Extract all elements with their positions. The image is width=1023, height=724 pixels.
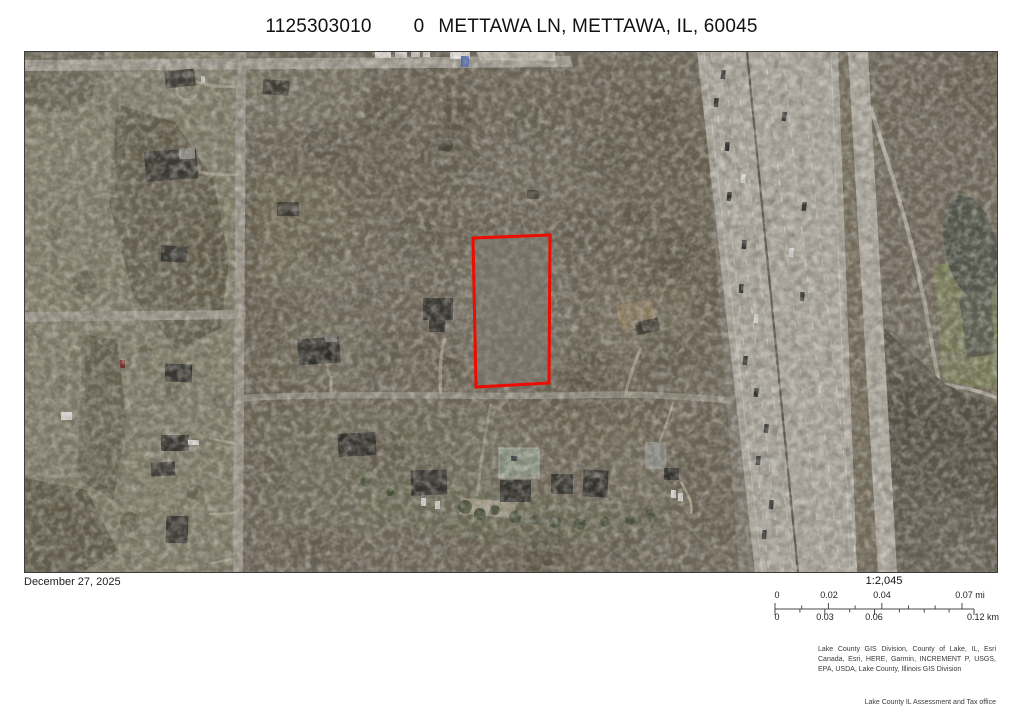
page-title: 11253030100METTAWA LN, METTAWA, IL, 6004… — [0, 16, 1023, 38]
mi-tick-3: 0.07 mi — [955, 590, 985, 600]
scale-km-labels: 0 0.03 0.06 0.12 km — [774, 612, 1004, 622]
mi-tick-0: 0 — [774, 590, 779, 600]
parcel-id: 1125303010 — [265, 16, 371, 37]
attribution-line-2: Canada, Esri, HERE, Garmin, INCREMENT P,… — [818, 655, 996, 665]
map-date: December 27, 2025 — [24, 576, 121, 588]
km-tick-1: 0.03 — [816, 612, 834, 622]
scale-bar: 1:2,045 0 0.02 0.04 0.07 mi — [774, 575, 1014, 627]
mi-tick-1: 0.02 — [820, 590, 838, 600]
scale-ratio: 1:2,045 — [774, 575, 994, 587]
report-page: 11253030100METTAWA LN, METTAWA, IL, 6004… — [0, 0, 1023, 724]
attribution-line-3: EPA, USDA, Lake County, Illinois GIS Div… — [818, 665, 996, 675]
km-tick-0: 0 — [774, 612, 779, 622]
address-text: METTAWA LN, METTAWA, IL, 60045 — [438, 16, 757, 37]
parcel-boundary — [473, 235, 550, 387]
attribution-line-1: Lake County GIS Division, County of Lake… — [818, 645, 996, 655]
office-credit: Lake County IL Assessment and Tax office — [818, 699, 996, 706]
address-house-number: 0 — [414, 16, 425, 37]
scale-miles-labels: 0 0.02 0.04 0.07 mi — [774, 590, 1004, 600]
mi-tick-2: 0.04 — [873, 590, 891, 600]
aerial-map — [24, 51, 998, 573]
map-attribution: Lake County GIS Division, County of Lake… — [818, 645, 996, 675]
aerial-imagery — [25, 52, 997, 572]
km-tick-2: 0.06 — [865, 612, 883, 622]
km-tick-3: 0.12 km — [967, 612, 999, 622]
